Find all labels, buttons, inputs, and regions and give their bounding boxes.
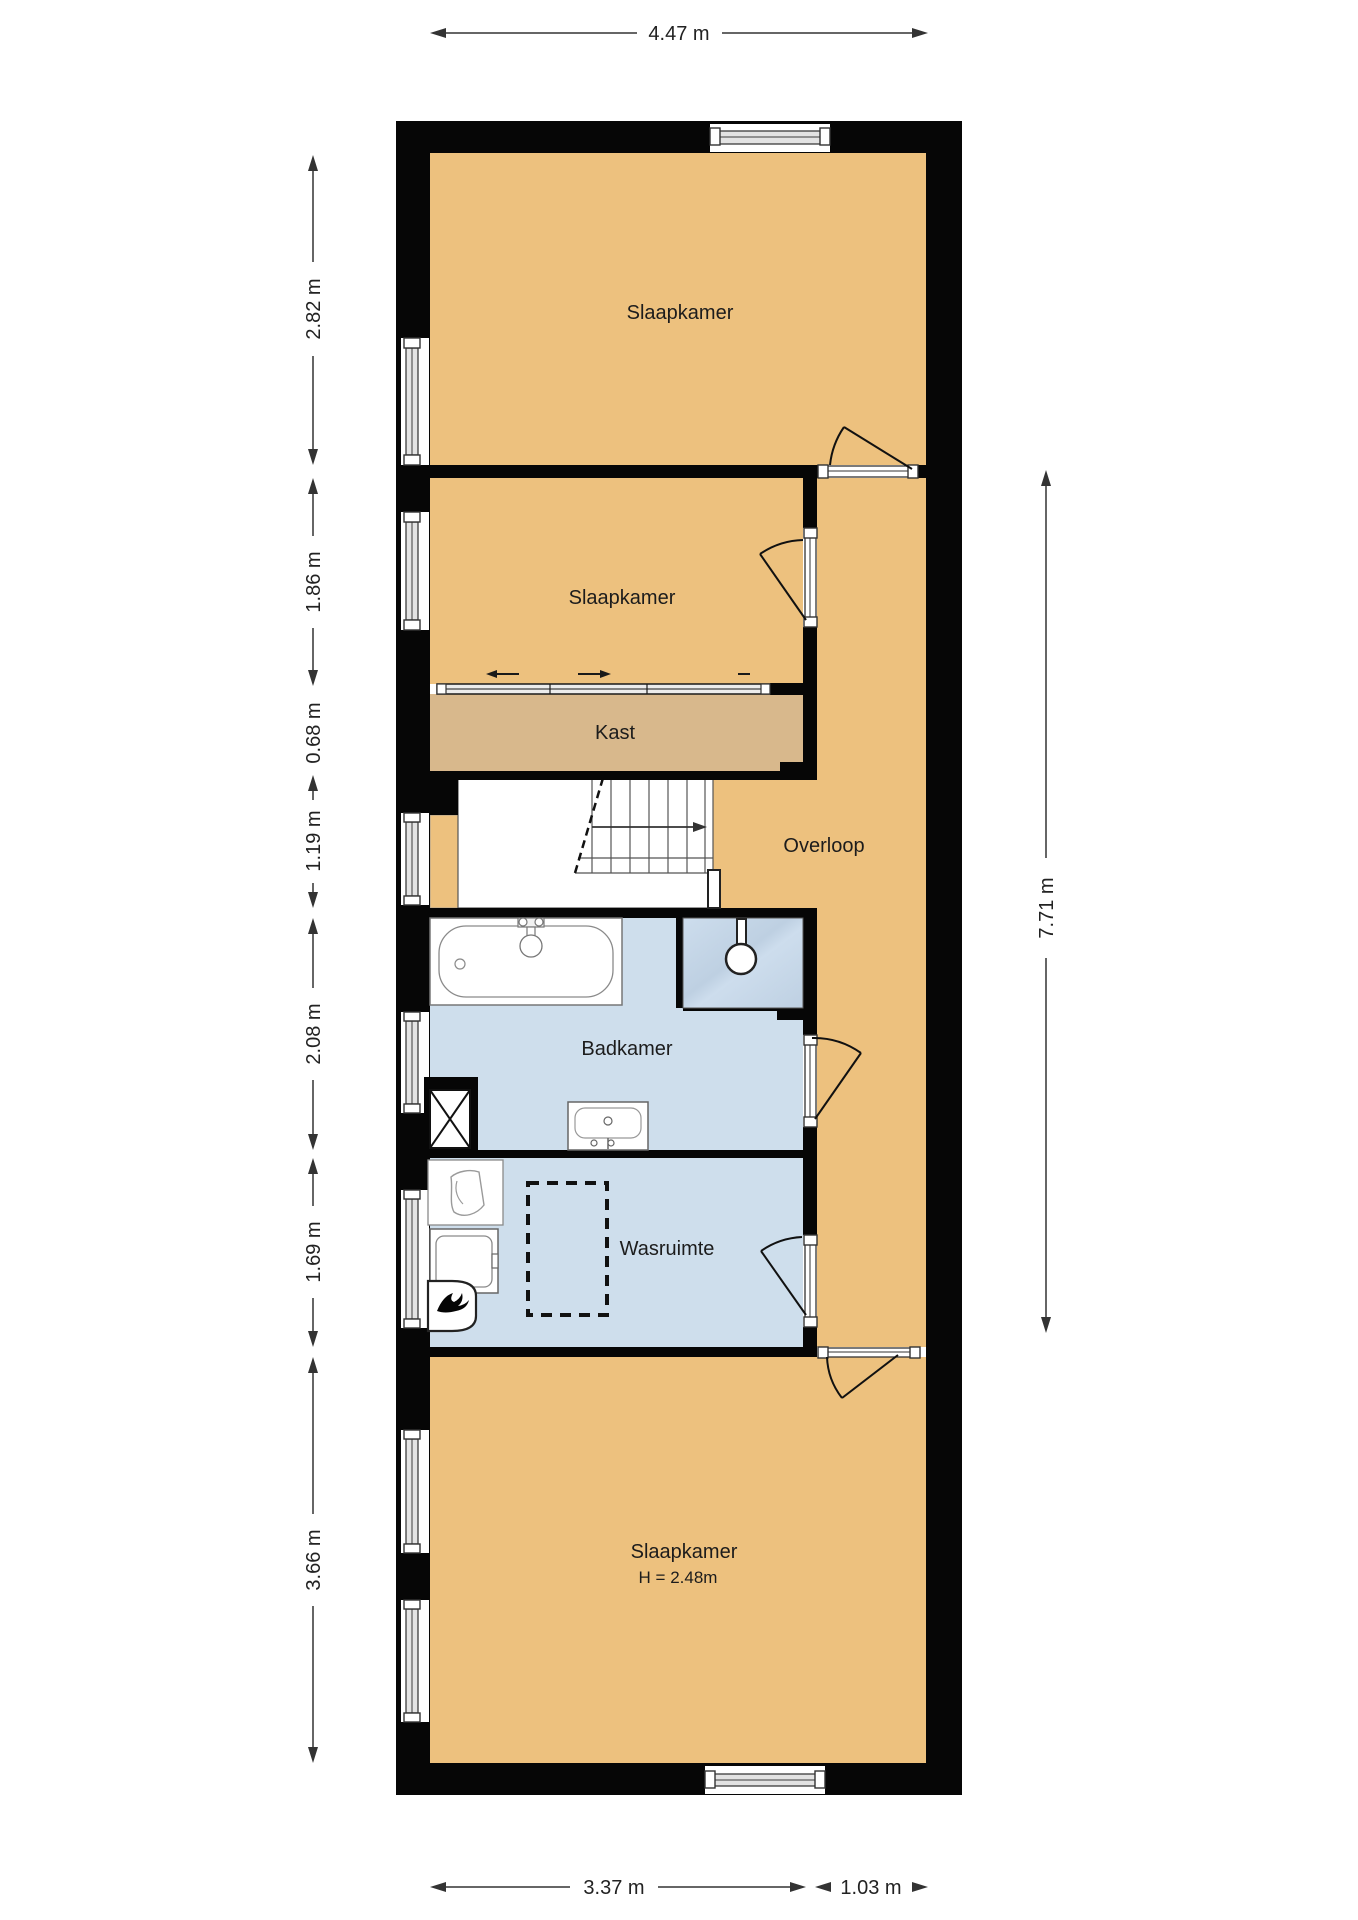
- svg-text:2.08 m: 2.08 m: [303, 1003, 325, 1064]
- dimension-bottom: 3.37 m 1.03 m: [430, 1877, 928, 1899]
- window: [401, 338, 429, 465]
- floorplan-canvas: Slaapkamer Slaapkamer Kast Overloop Badk…: [0, 0, 1358, 1920]
- label-kast: Kast: [595, 722, 635, 744]
- shower-head: [726, 944, 756, 974]
- stairwell-opening: [458, 778, 713, 908]
- wall-corridor-2: [803, 627, 817, 780]
- exterior-wall-bottom: [396, 1763, 962, 1795]
- stair-railing: [708, 870, 720, 908]
- svg-text:3.66 m: 3.66 m: [303, 1529, 325, 1590]
- laundry-sink: [428, 1160, 503, 1225]
- label-overloop: Overloop: [783, 835, 864, 857]
- duct-shaft: [424, 1077, 478, 1155]
- windows-left: [401, 338, 429, 1722]
- room-overloop-floor: [817, 478, 926, 1347]
- boiler: [428, 1281, 476, 1331]
- svg-text:1.19 m: 1.19 m: [303, 810, 325, 871]
- label-badkamer: Badkamer: [581, 1038, 672, 1060]
- wall-wasruimte-sk3: [396, 1347, 817, 1357]
- washbasin-drain: [604, 1117, 612, 1125]
- dimension-left: 2.82 m 1.86 m 0.68 m 1.19 m 2.08 m 1.69 …: [303, 155, 325, 1763]
- label-ceiling-height: H = 2.48m: [639, 1568, 718, 1587]
- label-slaapkamer-top: Slaapkamer: [627, 302, 734, 324]
- exterior-wall-top: [396, 121, 962, 153]
- window: [401, 1430, 429, 1553]
- overloop-strip-left-of-stairs: [430, 815, 458, 908]
- window: [401, 813, 429, 905]
- wall-stair-left-stub: [428, 771, 458, 815]
- wall-badkamer-wasruimte: [430, 1150, 803, 1158]
- bathtub-faucet: [520, 935, 542, 957]
- wall-corridor-4: [803, 1127, 817, 1235]
- washing-machine-latch: [492, 1254, 498, 1268]
- wall-stairs-badkamer: [396, 908, 803, 918]
- bathtub: [430, 918, 622, 1005]
- wall-corridor-5: [803, 1327, 817, 1347]
- label-slaapkamer-bottom: Slaapkamer: [631, 1541, 738, 1563]
- wall-sk1-overloop-stub: [918, 465, 928, 478]
- wall-corridor-1: [803, 478, 817, 528]
- room-slaapkamer-middle-floor: [430, 478, 803, 684]
- window-bottom: [705, 1766, 825, 1794]
- stairs: [458, 778, 713, 908]
- wall-shower-divider: [676, 918, 683, 1008]
- label-slaapkamer-middle: Slaapkamer: [569, 587, 676, 609]
- wall-corridor-3: [803, 908, 817, 1035]
- label-wasruimte: Wasruimte: [620, 1238, 715, 1260]
- svg-text:1.86 m: 1.86 m: [303, 551, 325, 612]
- svg-text:2.82 m: 2.82 m: [303, 278, 325, 339]
- window: [401, 512, 429, 630]
- wall-sk1-sk2: [430, 465, 818, 478]
- svg-text:3.37 m: 3.37 m: [583, 1877, 644, 1899]
- dimension-top: 4.47 m: [430, 23, 928, 45]
- svg-text:1.69 m: 1.69 m: [303, 1221, 325, 1282]
- shower-pipe: [737, 919, 746, 945]
- svg-text:0.68 m: 0.68 m: [303, 702, 325, 763]
- svg-text:1.03 m: 1.03 m: [840, 1877, 901, 1899]
- dimension-right: 7.71 m: [1036, 470, 1058, 1333]
- floorplan-svg: Slaapkamer Slaapkamer Kast Overloop Badk…: [0, 0, 1358, 1920]
- wall-kast-stairs: [430, 771, 817, 780]
- wall-sliding-door-stub: [770, 683, 803, 695]
- washbasin: [568, 1102, 648, 1150]
- window: [401, 1600, 429, 1722]
- exterior-wall-right: [926, 121, 962, 1795]
- window-top: [710, 124, 830, 152]
- window: [401, 1190, 429, 1328]
- svg-text:4.47 m: 4.47 m: [648, 23, 709, 45]
- shower: [683, 918, 803, 1008]
- svg-text:7.71 m: 7.71 m: [1036, 877, 1058, 938]
